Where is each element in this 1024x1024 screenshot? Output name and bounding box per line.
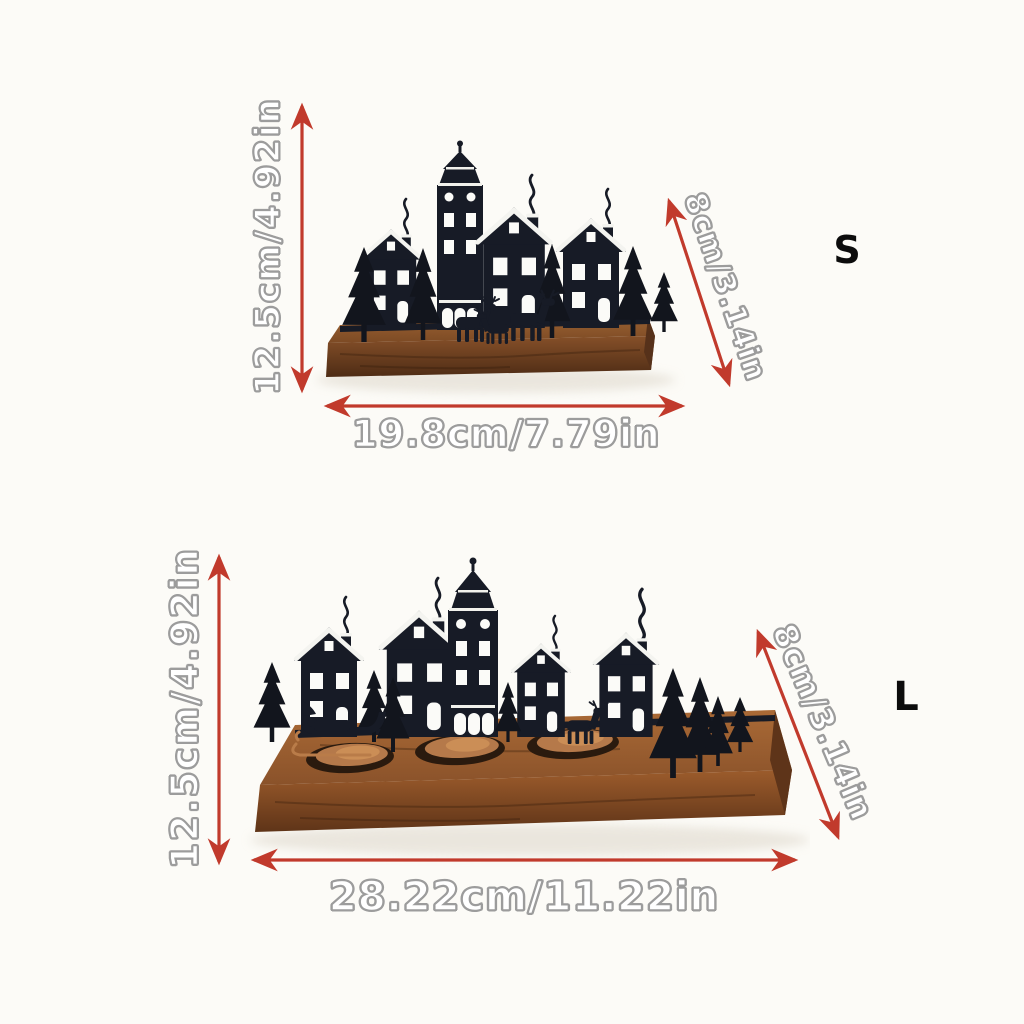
small-width-label: 19.8cm/7.79in bbox=[352, 413, 661, 456]
chimney-smoke bbox=[640, 589, 645, 640]
large-width-label: 28.22cm/11.22in bbox=[329, 874, 719, 920]
chimney-smoke bbox=[606, 189, 609, 228]
tower-house bbox=[437, 141, 483, 331]
product-photo-small bbox=[300, 140, 690, 410]
chimney-smoke bbox=[553, 616, 556, 651]
small-height-label: 12.5cm/4.92in bbox=[248, 97, 288, 395]
large-size-label: L bbox=[893, 674, 919, 720]
small-size-label: S bbox=[833, 228, 860, 272]
tower-house bbox=[448, 558, 498, 738]
house bbox=[593, 633, 660, 738]
chimney-smoke bbox=[404, 199, 407, 238]
product-photo-large bbox=[230, 540, 810, 870]
house bbox=[511, 644, 571, 738]
product-size-chart-image: 12.5cm/4.92in 19.8cm/7.79in 8cm/3.14in S… bbox=[0, 0, 1024, 1024]
small-depth-label: 8cm/3.14in bbox=[676, 188, 773, 385]
chimney-smoke bbox=[344, 597, 347, 636]
chimney-smoke bbox=[436, 578, 440, 621]
large-height-label: 12.5cm/4.92in bbox=[164, 547, 207, 869]
chimney-smoke bbox=[530, 175, 534, 218]
